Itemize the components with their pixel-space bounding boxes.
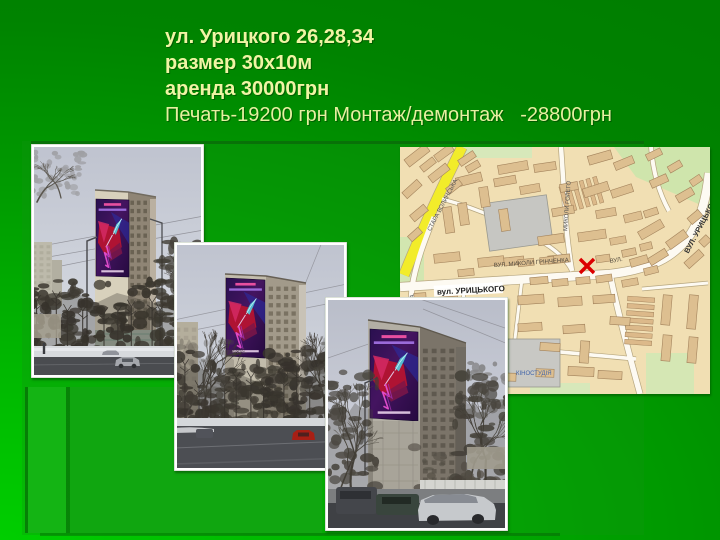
svg-text:КІНОСТУДІЯ: КІНОСТУДІЯ bbox=[516, 371, 552, 377]
